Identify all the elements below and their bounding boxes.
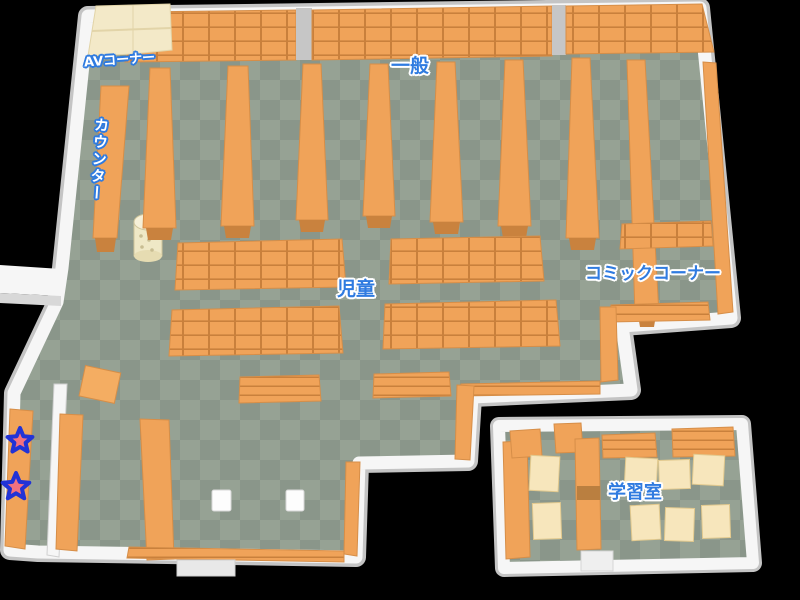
bookshelf bbox=[344, 462, 360, 556]
picture-book-shelf bbox=[239, 375, 321, 403]
low-bookshelf bbox=[389, 236, 544, 284]
divider-gap bbox=[577, 486, 600, 500]
rack-bottom bbox=[134, 250, 162, 262]
wall-bookshelf bbox=[459, 381, 600, 396]
floor-map-canvas bbox=[0, 0, 800, 600]
stool bbox=[212, 490, 231, 511]
study-table bbox=[630, 504, 661, 540]
top-wall-bookshelves bbox=[125, 4, 714, 62]
study-table bbox=[659, 459, 691, 489]
low-bookshelf bbox=[383, 300, 560, 349]
entrance-door bbox=[177, 560, 235, 576]
label-study-room: 学習室 bbox=[608, 484, 662, 503]
study-table bbox=[701, 505, 730, 539]
stool bbox=[286, 490, 304, 511]
study-table bbox=[529, 455, 560, 491]
label-children: 児童 bbox=[337, 280, 375, 300]
wall-pillar bbox=[552, 5, 566, 55]
counter-shelf-base bbox=[95, 238, 116, 252]
av-corner-desks bbox=[88, 4, 172, 56]
study-room-door bbox=[581, 551, 613, 571]
low-bookshelf bbox=[175, 239, 346, 290]
porch-roof bbox=[0, 265, 61, 296]
library-floor-map: AVコーナー カウンター 一般 児童 コミックコーナー 学習室 bbox=[0, 0, 800, 600]
reading-table bbox=[79, 366, 121, 404]
bookshelf bbox=[566, 4, 714, 54]
bookshelf bbox=[312, 6, 552, 60]
study-table bbox=[692, 454, 725, 486]
wall-bookshelf bbox=[672, 427, 735, 457]
study-table bbox=[664, 508, 694, 542]
entrance-porch bbox=[0, 265, 61, 306]
label-general: 一般 bbox=[391, 57, 429, 77]
wall-bookshelf bbox=[602, 433, 657, 458]
label-comic-corner: コミックコーナー bbox=[585, 266, 721, 284]
comic-shelf bbox=[600, 307, 618, 382]
wall-pillar bbox=[296, 8, 312, 60]
low-bookshelf bbox=[169, 306, 343, 356]
bookshelf bbox=[510, 429, 542, 458]
bookshelf bbox=[503, 441, 530, 559]
comic-shelf bbox=[620, 221, 713, 249]
comic-shelf bbox=[609, 302, 710, 322]
picture-book-shelf bbox=[373, 372, 451, 398]
study-table bbox=[532, 503, 561, 540]
